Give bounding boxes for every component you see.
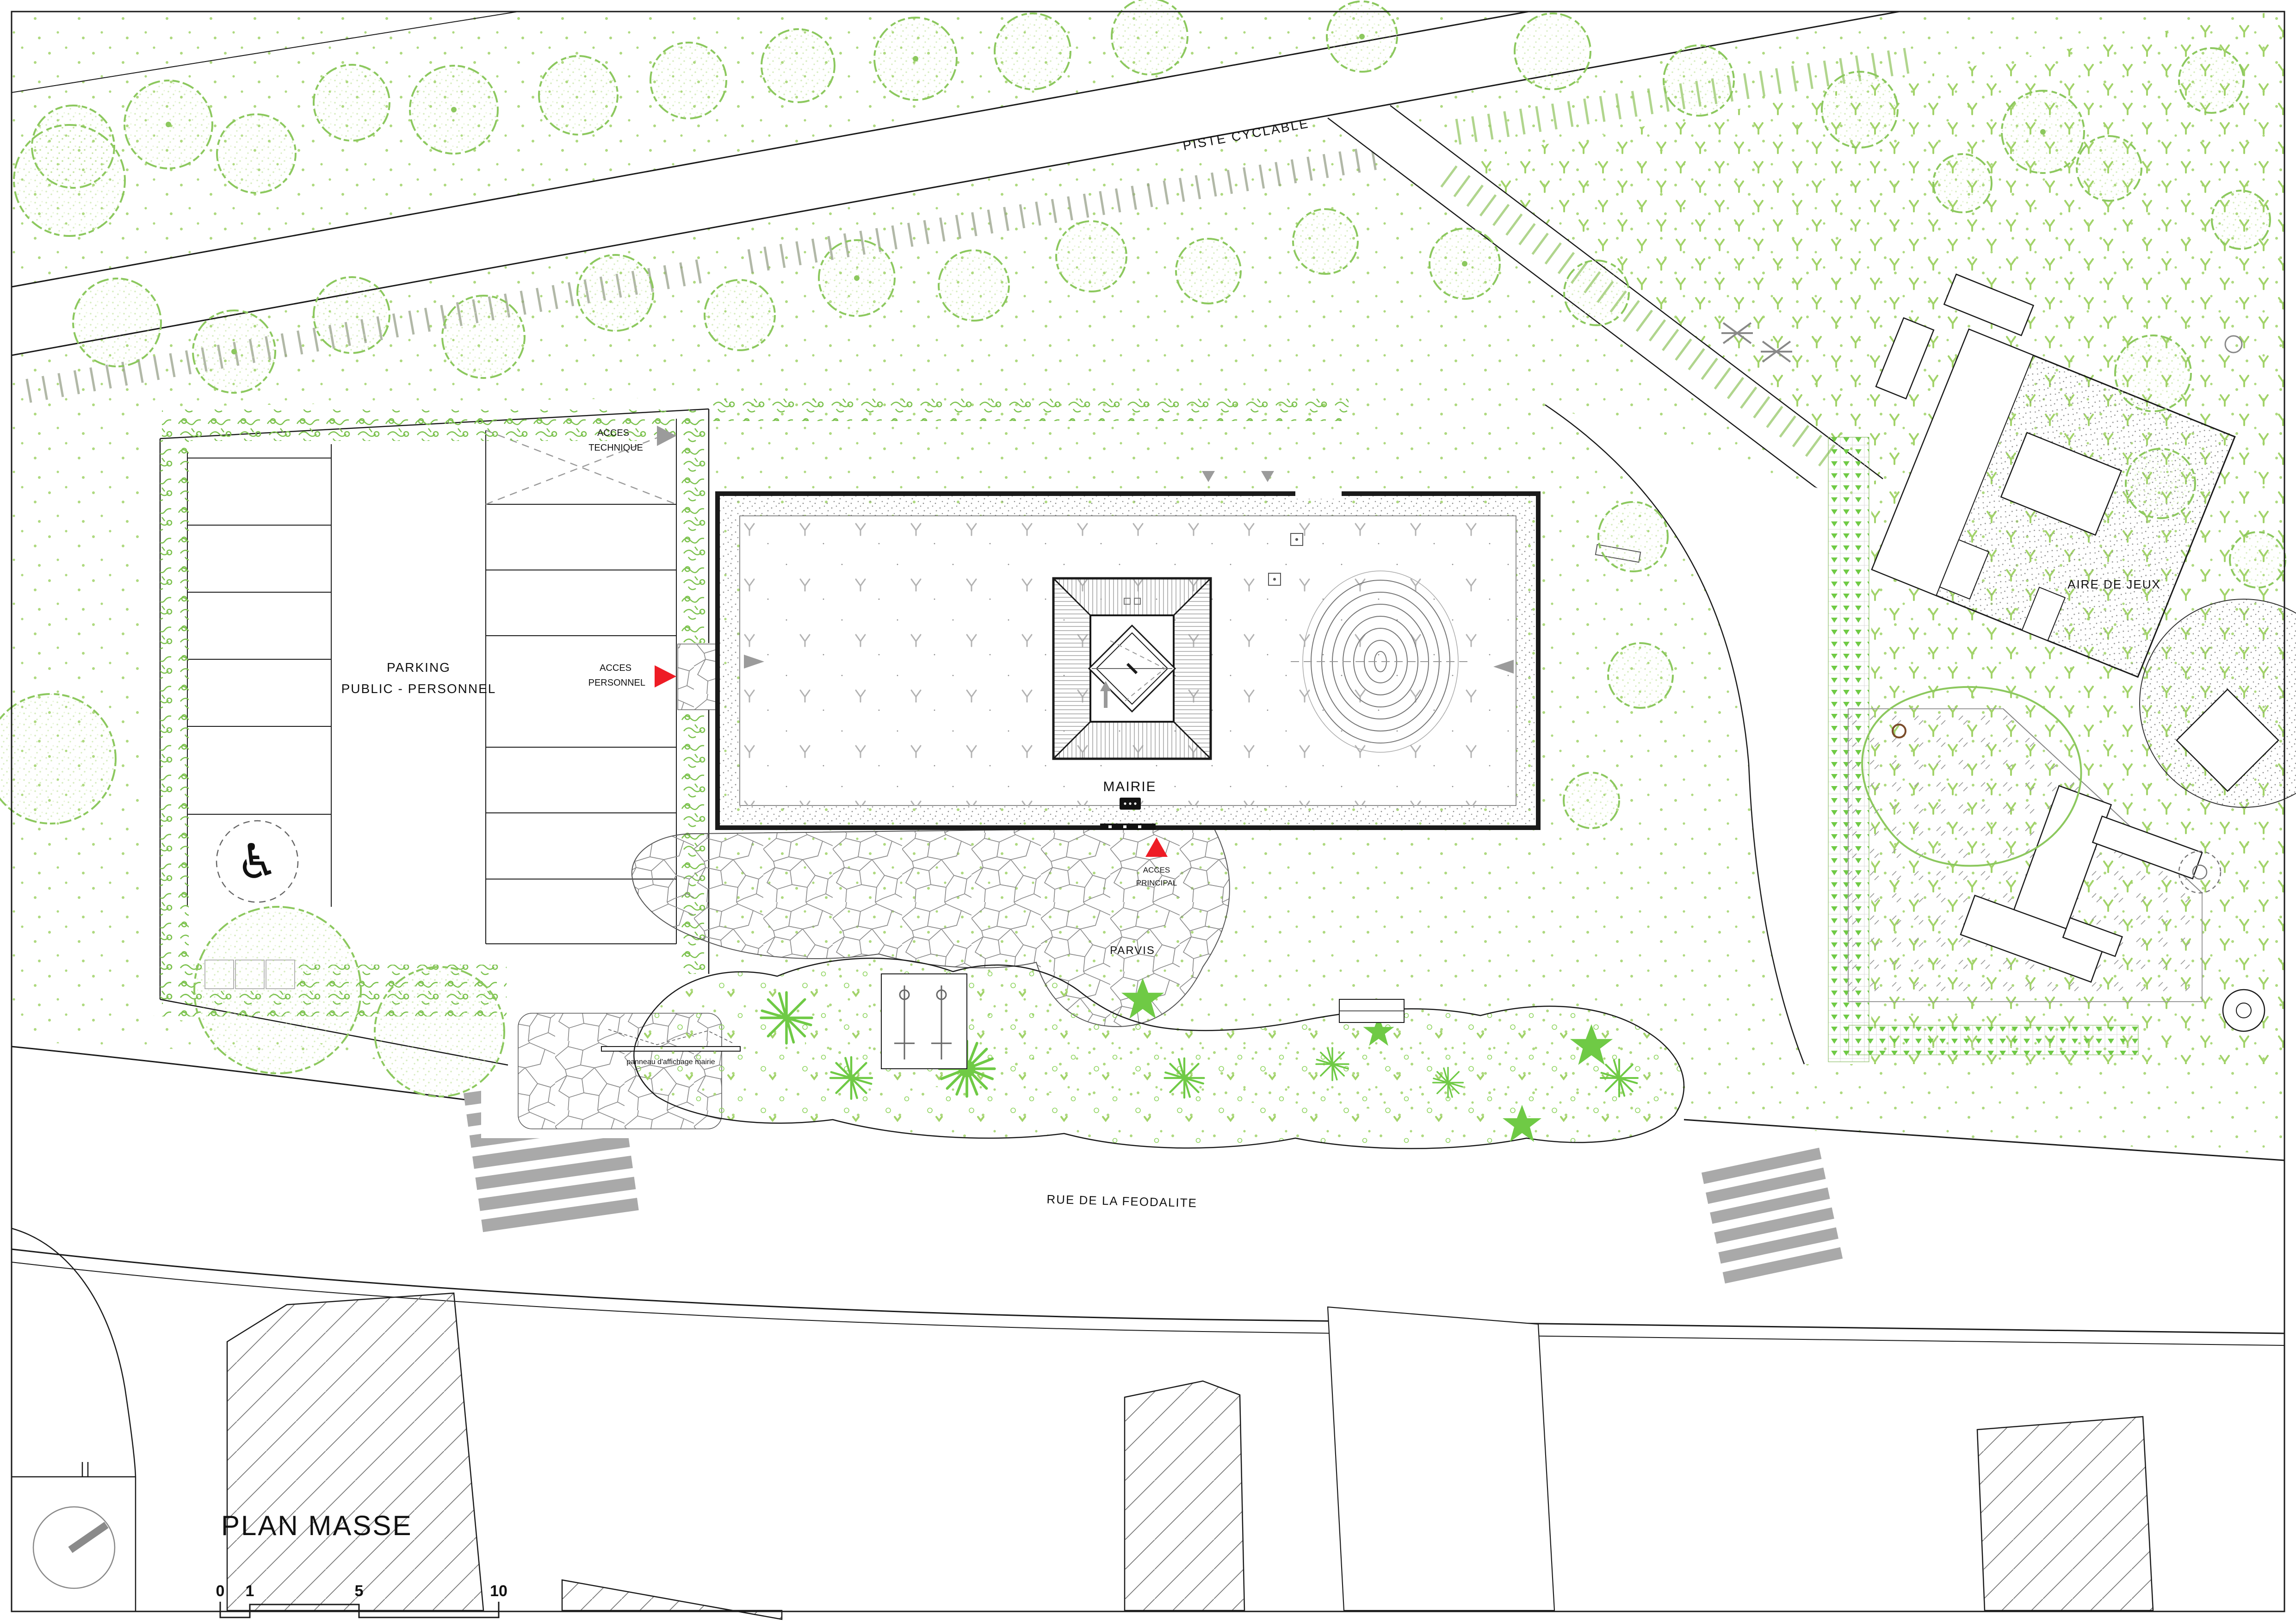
scale-tick-1: 1 [246, 1582, 254, 1600]
site-plan: ♿ PARKING PUBLIC - PERSONNEL ACCES TECHN… [0, 0, 2296, 1623]
mairie-label: MAIRIE [1103, 779, 1156, 794]
scale-tick-0: 0 [216, 1582, 225, 1600]
parking-label-line1: PARKING [387, 660, 451, 675]
pavilion [1053, 578, 1211, 759]
acces-technique-line2: TECHNIQUE [588, 443, 643, 453]
scale-tick-10: 10 [490, 1582, 507, 1600]
acces-principal-line1: ACCES [1143, 866, 1170, 874]
south-gate [1100, 824, 1156, 830]
acces-personnel-line1: ACCES [600, 663, 631, 673]
mairie-building: MAIRIE [718, 471, 1538, 830]
scale-tick-5: 5 [355, 1582, 364, 1600]
info-sign-icon [1120, 798, 1141, 810]
entrance-paving [678, 644, 718, 710]
acces-technique-line1: ACCES [597, 428, 629, 438]
round-feature [2223, 990, 2265, 1031]
north-gate [1295, 489, 1342, 499]
parvis-label: PARVIS [1110, 944, 1155, 957]
wheelchair-icon: ♿ [235, 835, 278, 889]
parking-label-line2: PUBLIC - PERSONNEL [341, 681, 496, 696]
aire-de-jeux-label: AIRE DE JEUX [2067, 577, 2161, 591]
acces-personnel-line2: PERSONNEL [588, 678, 645, 688]
acces-principal-line2: PRINCIPAL [1136, 879, 1177, 887]
plan-title: PLAN MASSE [221, 1510, 412, 1541]
bike-racks [881, 974, 967, 1069]
north-symbol [33, 1507, 115, 1588]
hedge-band-horizontal [1849, 1025, 2138, 1055]
